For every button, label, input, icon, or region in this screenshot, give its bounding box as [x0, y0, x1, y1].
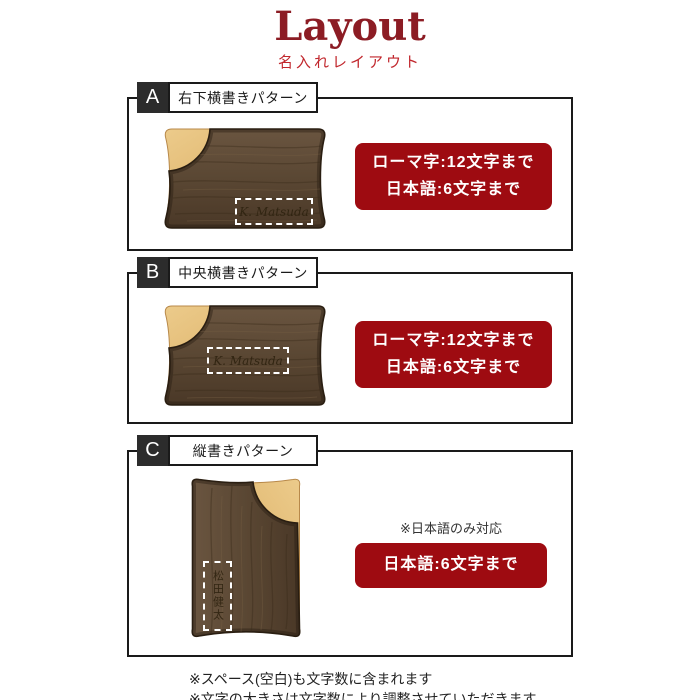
page-subtitle: 名入れレイアウト [0, 51, 700, 72]
section-c-label: C [137, 435, 168, 466]
page-header: Layout 名入れレイアウト [0, 0, 700, 72]
layout-sections: A 右下横書きパターン [127, 97, 573, 657]
section-a: A 右下横書きパターン [127, 97, 573, 251]
section-b-header: B 中央横書きパターン [137, 257, 318, 288]
section-a-title: 右下横書きパターン [168, 82, 318, 113]
engraving-sample-c: 松田健太 [210, 570, 226, 622]
engraving-zone-a: K. Matsuda [235, 198, 313, 225]
limit-b-japanese: 日本語:6文字まで [386, 355, 521, 381]
limit-badge-a: ローマ字:12文字まで 日本語:6文字まで [355, 143, 552, 210]
section-c-title: 縦書きパターン [168, 435, 318, 466]
engraving-sample-b: K. Matsuda [213, 354, 283, 368]
section-b: B 中央横書きパターン [127, 272, 573, 424]
footnote-space: ※スペース(空白)も文字数に含まれます [189, 671, 573, 689]
section-b-title: 中央横書きパターン [168, 257, 318, 288]
limit-badge-b: ローマ字:12文字まで 日本語:6文字まで [355, 321, 552, 388]
engraving-zone-b: K. Matsuda [207, 347, 289, 374]
section-c: C 縦書きパターン [127, 450, 573, 657]
japanese-only-note: ※日本語のみ対応 [355, 518, 547, 537]
section-b-label: B [137, 257, 168, 288]
limit-c-japanese: 日本語:6文字まで [383, 552, 518, 578]
limit-a-japanese: 日本語:6文字まで [386, 177, 521, 203]
footnotes: ※スペース(空白)も文字数に含まれます ※文字の大きさは文字数により調整させてい… [127, 671, 573, 700]
limit-a-romaji: ローマ字:12文字まで [372, 150, 534, 176]
section-a-label: A [137, 82, 168, 113]
engraving-zone-c: 松田健太 [203, 561, 232, 631]
page-title: Layout [0, 6, 700, 48]
engraving-sample-a: K. Matsuda [239, 205, 309, 219]
section-a-header: A 右下横書きパターン [137, 82, 318, 113]
section-c-header: C 縦書きパターン [137, 435, 318, 466]
footnote-size: ※文字の大きさは文字数により調整させていただきます [189, 691, 573, 700]
limit-badge-c: 日本語:6文字まで [355, 543, 547, 588]
limit-b-romaji: ローマ字:12文字まで [372, 328, 534, 354]
